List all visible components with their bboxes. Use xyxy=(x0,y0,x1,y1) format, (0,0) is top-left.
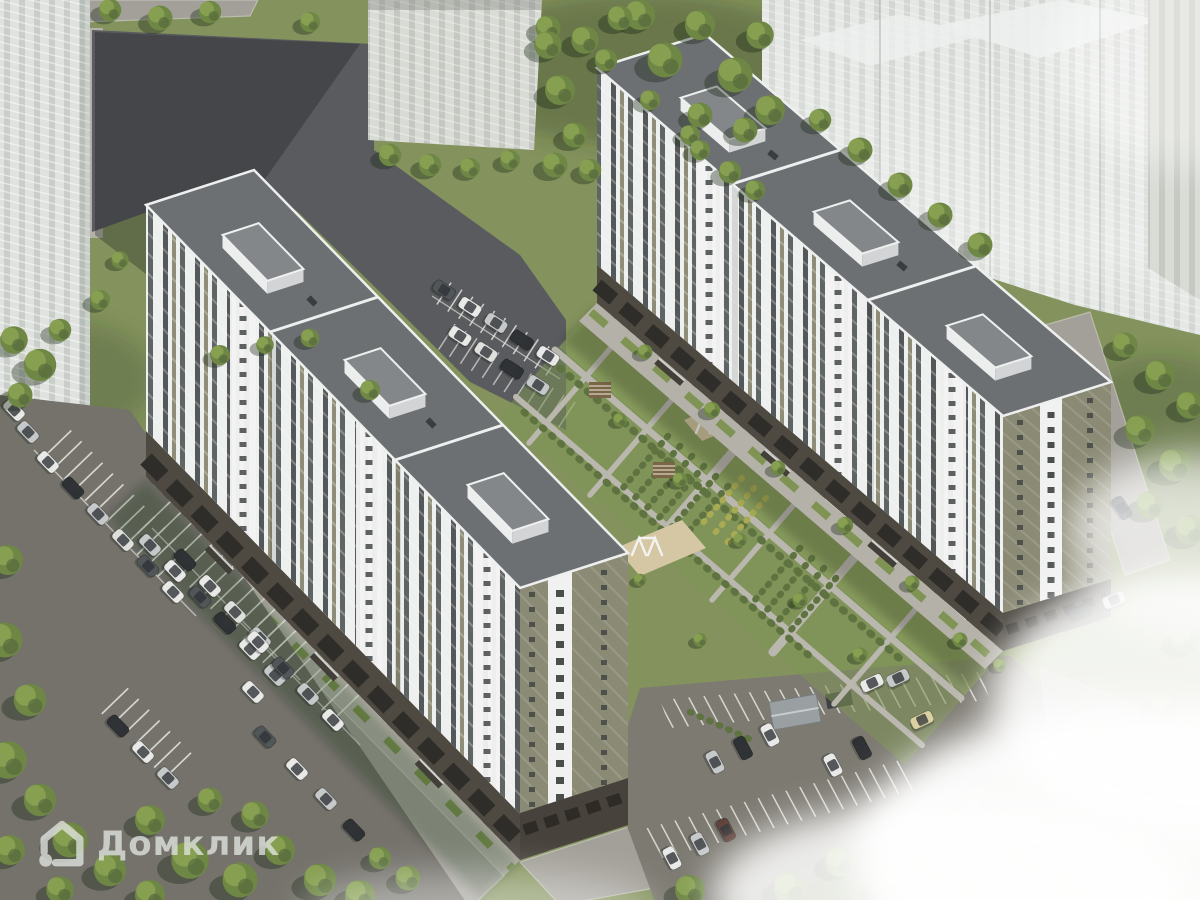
domclick-house-logo xyxy=(36,818,88,870)
building-a-end-wall xyxy=(520,553,628,860)
bg-tower-center xyxy=(368,0,542,150)
render-scene xyxy=(0,0,1200,900)
watermark: Домклик xyxy=(36,818,280,870)
aerial-render: Домклик xyxy=(0,0,1200,900)
pergola xyxy=(589,382,611,398)
watermark-brand: Домклик xyxy=(97,827,280,861)
pergola xyxy=(653,462,675,478)
